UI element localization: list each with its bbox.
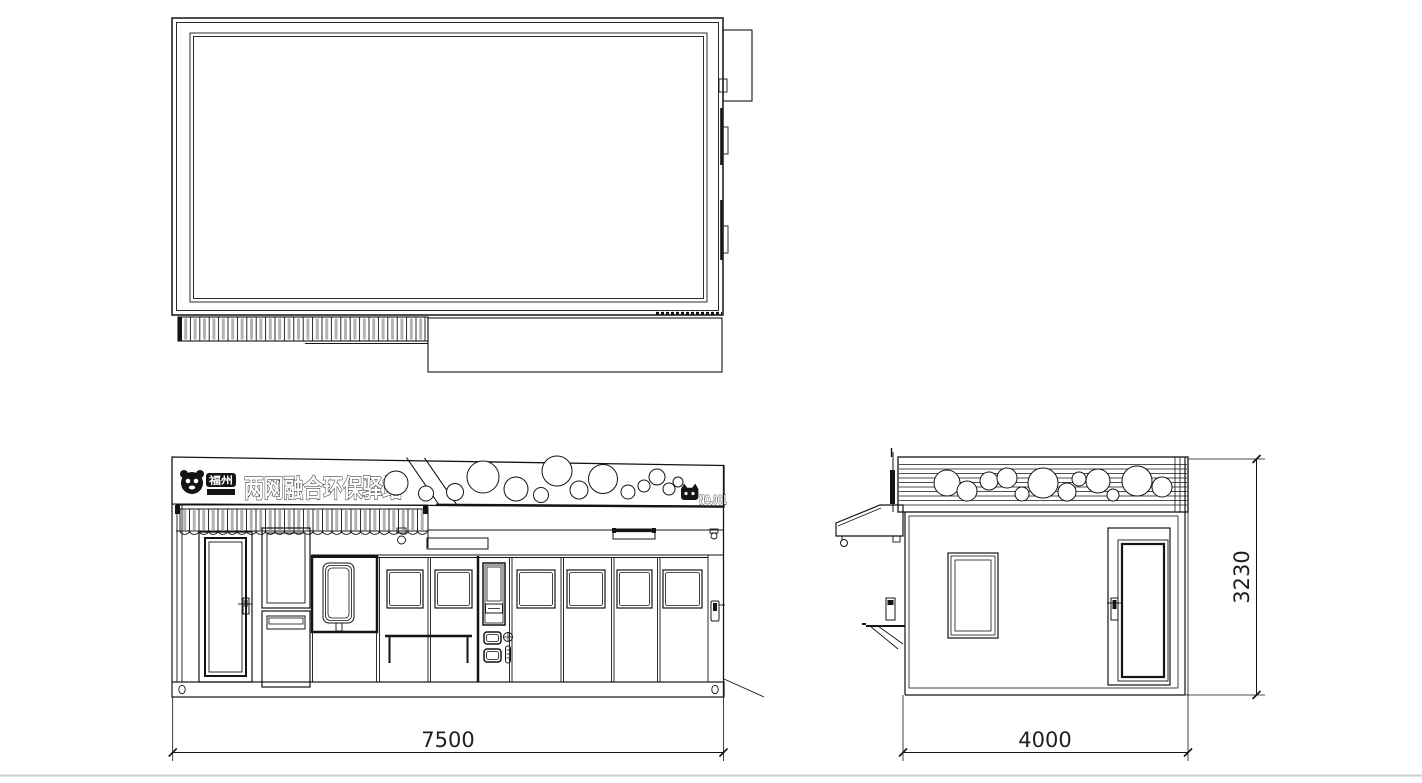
roof-plan-view <box>172 18 752 372</box>
logo-badge-text: 福州 <box>208 474 233 487</box>
cad-drawing-sheet: 福州 两网融合环保驿站 NO.001 <box>0 0 1422 783</box>
dimension-front-width-text: 7500 <box>421 728 474 752</box>
logo-subbar <box>207 489 235 495</box>
dimension-front-width: 7500 <box>169 697 728 761</box>
collection-door-4 <box>663 570 702 608</box>
front-plinth <box>172 679 764 697</box>
vending-kiosk <box>483 563 513 663</box>
compartment-row <box>312 556 725 682</box>
sign-band: 福州 两网融合环保驿站 NO.001 <box>172 456 727 507</box>
plan-canopy-outline <box>428 318 722 372</box>
front-elevation-view: 福州 两网融合环保驿站 NO.001 <box>169 456 764 761</box>
front-door <box>199 532 252 682</box>
collection-door-3 <box>617 570 652 608</box>
dimension-side-depth-text: 4000 <box>1018 728 1071 752</box>
side-shelf-bracket <box>862 598 905 649</box>
plan-awning-slats <box>178 317 428 344</box>
side-window <box>948 553 998 638</box>
collection-door-2 <box>567 570 605 608</box>
front-awning-slats <box>175 505 428 534</box>
side-door <box>1107 528 1170 685</box>
side-elevation-view: 4000 3230 <box>836 448 1265 761</box>
dimension-side-depth: 4000 <box>899 457 1192 761</box>
unit-number-text: NO.001 <box>699 493 727 507</box>
counter-table <box>385 636 472 663</box>
deposit-slot <box>267 616 305 629</box>
coin-slots <box>484 632 501 662</box>
kiosk-technical-drawing: 福州 两网融合环保驿站 NO.001 <box>0 0 1422 783</box>
front-window-column <box>262 528 310 687</box>
unit-number-badge: NO.001 <box>681 484 727 508</box>
brand-logo-icon <box>180 470 204 494</box>
service-window-2 <box>435 570 472 608</box>
mascot-icon <box>681 484 698 501</box>
service-window-1 <box>387 570 423 608</box>
info-screen-section <box>312 556 377 682</box>
side-roof-band <box>890 448 1188 512</box>
collection-door-1 <box>517 570 555 608</box>
lock-dial-icon <box>504 633 513 664</box>
side-door-handle <box>1107 598 1122 620</box>
dimension-height-text: 3230 <box>1230 550 1254 603</box>
sign-title-text: 两网融合环保驿站 <box>244 474 402 503</box>
